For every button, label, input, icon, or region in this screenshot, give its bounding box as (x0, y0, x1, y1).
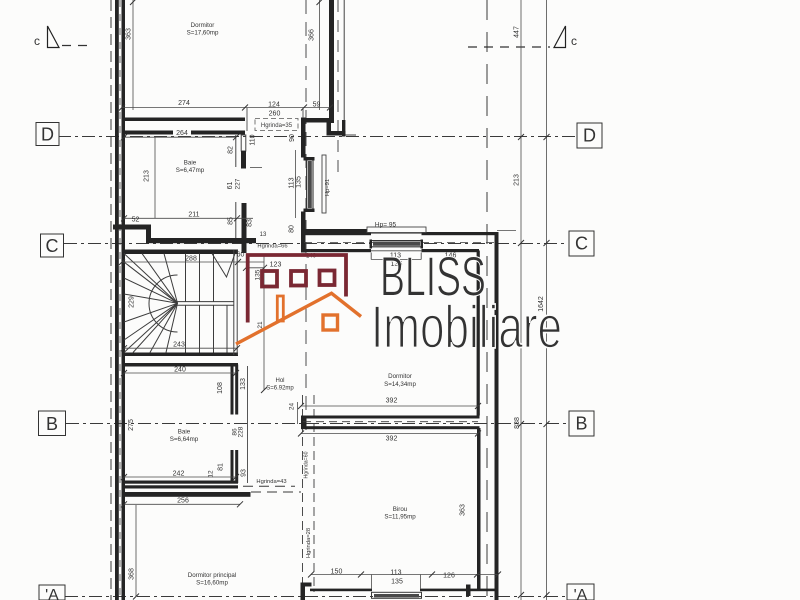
svg-text:288: 288 (185, 256, 197, 263)
svg-text:Imobiliare: Imobiliare (371, 294, 562, 361)
svg-text:Dormitor: Dormitor (388, 373, 412, 380)
svg-text:S=6,64mp: S=6,64mp (170, 436, 199, 443)
svg-text:60: 60 (237, 252, 245, 259)
svg-text:93: 93 (241, 469, 248, 477)
svg-text:124: 124 (268, 102, 280, 109)
svg-text:S=6,47mp: S=6,47mp (176, 167, 205, 174)
svg-text:81: 81 (218, 463, 225, 471)
svg-text:228: 228 (238, 426, 245, 437)
svg-text:211: 211 (188, 212, 199, 219)
svg-text:108: 108 (217, 382, 224, 394)
svg-text:C: C (575, 234, 588, 254)
svg-text:D: D (583, 126, 596, 146)
svg-text:363: 363 (460, 504, 467, 516)
svg-text:Dormitor principal: Dormitor principal (188, 572, 236, 579)
svg-text:110: 110 (250, 134, 257, 145)
svg-text:61: 61 (227, 182, 234, 190)
svg-text:'A: 'A (45, 587, 59, 600)
svg-text:21: 21 (257, 321, 264, 329)
svg-text:83: 83 (247, 219, 254, 227)
svg-text:24: 24 (289, 403, 296, 411)
svg-text:264: 264 (176, 130, 188, 137)
svg-text:Hgrinda=43: Hgrinda=43 (256, 479, 286, 485)
svg-text:Baie: Baie (178, 429, 191, 436)
svg-text:213: 213 (514, 174, 521, 186)
svg-text:S=16,60mp: S=16,60mp (196, 580, 228, 587)
svg-text:213: 213 (144, 170, 151, 182)
svg-text:227: 227 (235, 178, 242, 189)
svg-text:S=17,60mp: S=17,60mp (187, 30, 219, 37)
svg-text:c: c (571, 34, 577, 48)
svg-text:Hgrinda=60: Hgrinda=60 (304, 451, 310, 478)
svg-text:229: 229 (129, 296, 136, 308)
svg-text:c: c (34, 34, 40, 48)
svg-text:59: 59 (313, 102, 321, 109)
svg-text:13: 13 (260, 232, 267, 238)
svg-text:368: 368 (129, 568, 136, 580)
svg-text:135: 135 (296, 176, 303, 188)
svg-text:85: 85 (228, 217, 235, 225)
svg-text:113: 113 (390, 570, 401, 577)
svg-text:Hp= 95: Hp= 95 (375, 222, 397, 229)
svg-text:Hgrinda=28: Hgrinda=28 (306, 528, 312, 558)
svg-text:12: 12 (208, 470, 215, 478)
svg-text:123: 123 (270, 262, 282, 269)
svg-text:Hgrinda=35: Hgrinda=35 (261, 123, 293, 129)
svg-text:275: 275 (128, 419, 135, 431)
svg-text:52: 52 (132, 217, 140, 224)
svg-text:Hgrinda=66: Hgrinda=66 (257, 244, 287, 250)
svg-text:S=6.92mp: S=6.92mp (266, 386, 294, 392)
svg-text:256: 256 (177, 498, 189, 505)
svg-text:274: 274 (178, 100, 190, 107)
svg-text:260: 260 (269, 111, 281, 118)
svg-text:447: 447 (514, 26, 521, 38)
svg-text:133: 133 (240, 378, 247, 390)
svg-text:Dormitor: Dormitor (191, 22, 215, 29)
svg-text:S=14,34mp: S=14,34mp (384, 381, 416, 388)
svg-text:113: 113 (289, 177, 296, 188)
svg-text:D: D (41, 125, 54, 145)
svg-text:150: 150 (331, 569, 343, 576)
svg-text:135: 135 (391, 579, 403, 586)
svg-text:363: 363 (126, 28, 133, 40)
svg-text:90: 90 (289, 134, 296, 142)
svg-text:242: 242 (173, 471, 185, 478)
svg-text:838: 838 (514, 417, 521, 429)
svg-text:82: 82 (228, 146, 235, 154)
svg-text:Hol: Hol (275, 378, 284, 384)
svg-text:240: 240 (174, 367, 186, 374)
svg-text:Hp=91: Hp=91 (325, 179, 331, 196)
svg-text:366: 366 (309, 29, 316, 41)
svg-text:Birou: Birou (393, 506, 408, 513)
svg-text:'A: 'A (574, 587, 588, 600)
svg-text:392: 392 (386, 398, 398, 405)
svg-text:392: 392 (386, 436, 398, 443)
svg-text:B: B (46, 414, 58, 434)
svg-text:243: 243 (173, 342, 185, 349)
svg-text:B: B (575, 414, 587, 434)
svg-text:126: 126 (443, 573, 455, 580)
svg-text:S=11,95mp: S=11,95mp (384, 514, 416, 521)
svg-text:Baie: Baie (184, 160, 197, 167)
svg-text:C: C (46, 236, 59, 256)
svg-text:80: 80 (289, 225, 296, 233)
